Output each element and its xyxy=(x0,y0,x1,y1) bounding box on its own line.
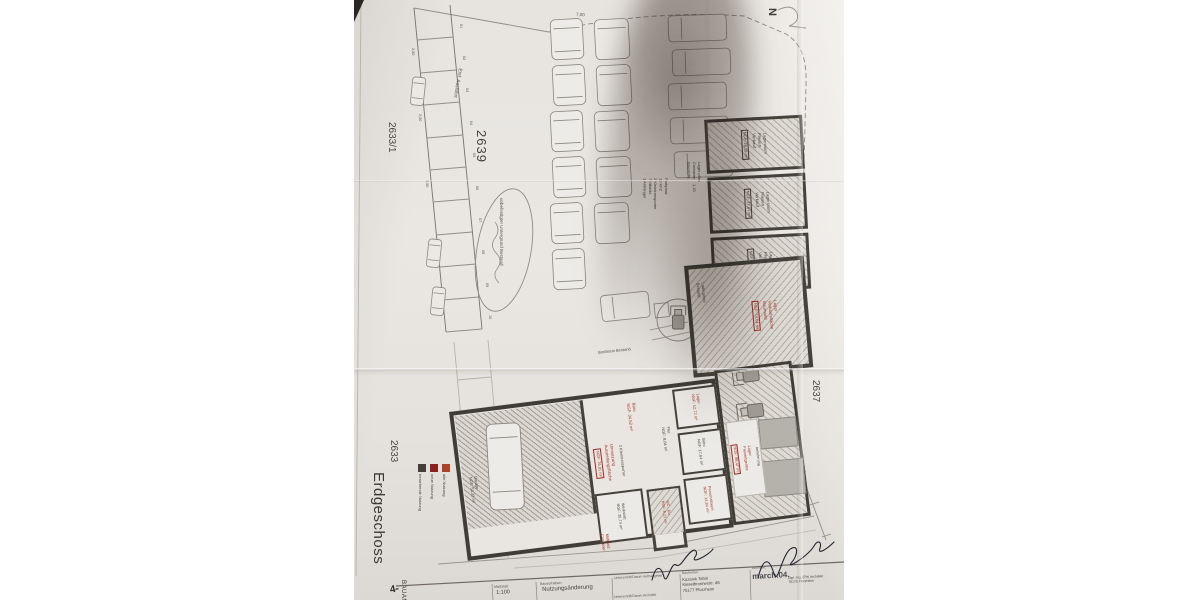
client-signature xyxy=(652,549,713,580)
fold-crease-horizontal-faint xyxy=(354,180,844,182)
architect-signature xyxy=(758,542,834,578)
fold-crease-right xyxy=(797,0,803,600)
overlay-linework xyxy=(354,0,844,600)
fold-crease-horizontal xyxy=(354,368,844,371)
floor-plan-photo: 01 02 03 04 05 06 07 08 09 10 2,50 2,50 … xyxy=(354,0,844,600)
fold-crease-vertical xyxy=(706,0,708,190)
